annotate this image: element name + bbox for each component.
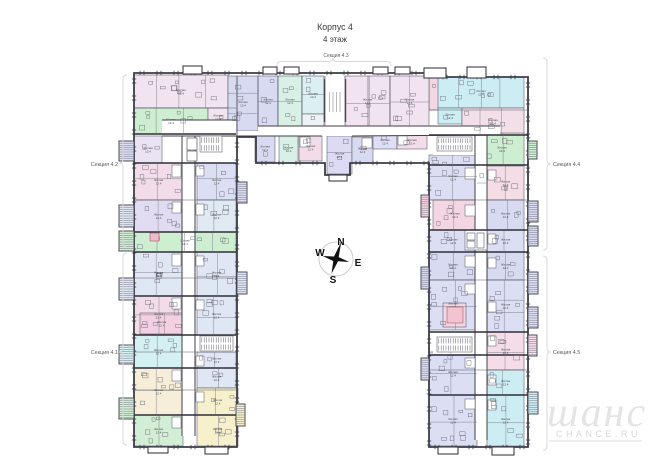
svg-text:12.4: 12.4 (478, 93, 484, 97)
svg-text:12.4: 12.4 (450, 178, 456, 182)
svg-text:12.4: 12.4 (503, 383, 509, 387)
svg-text:12.4: 12.4 (365, 101, 371, 105)
svg-text:12.4: 12.4 (499, 149, 505, 153)
svg-text:12.4: 12.4 (450, 421, 456, 425)
svg-text:12.4: 12.4 (215, 117, 221, 121)
svg-text:12.4: 12.4 (214, 274, 220, 278)
svg-text:12.4: 12.4 (310, 95, 316, 99)
svg-text:12.4: 12.4 (214, 378, 220, 382)
svg-text:N: N (337, 237, 344, 248)
svg-text:12.4: 12.4 (262, 148, 268, 152)
svg-text:12.4: 12.4 (240, 104, 246, 108)
svg-text:12.4: 12.4 (214, 216, 220, 220)
svg-text:12.4: 12.4 (503, 215, 509, 219)
svg-text:12.4: 12.4 (450, 374, 456, 378)
svg-text:12.4: 12.4 (156, 274, 162, 278)
svg-text:12.4: 12.4 (503, 421, 509, 425)
svg-text:12.4: 12.4 (407, 101, 413, 105)
svg-text:12.4: 12.4 (156, 216, 162, 220)
svg-text:12.4: 12.4 (503, 351, 509, 355)
svg-text:E: E (355, 258, 362, 269)
svg-text:Секция 4.2: Секция 4.2 (91, 162, 118, 168)
svg-text:12.4: 12.4 (452, 215, 458, 219)
svg-text:12.4: 12.4 (156, 316, 162, 320)
svg-text:12.4: 12.4 (156, 182, 162, 186)
svg-text:12.4: 12.4 (156, 431, 162, 435)
svg-text:Секция 4.3: Секция 4.3 (323, 53, 349, 59)
svg-text:12.4: 12.4 (168, 121, 174, 125)
svg-text:12.4: 12.4 (360, 150, 366, 154)
svg-text:12.4: 12.4 (503, 241, 509, 245)
svg-text:12.4: 12.4 (308, 148, 314, 152)
svg-text:Секция 4.4: Секция 4.4 (553, 162, 580, 168)
svg-text:12.4: 12.4 (503, 266, 509, 270)
svg-text:12.4: 12.4 (286, 149, 292, 153)
svg-text:12.4: 12.4 (337, 155, 343, 159)
svg-text:S: S (330, 275, 337, 286)
svg-text:12.4: 12.4 (215, 431, 221, 435)
svg-text:12.4: 12.4 (156, 352, 162, 356)
svg-text:12.4: 12.4 (156, 392, 162, 396)
svg-text:12.4: 12.4 (450, 266, 456, 270)
svg-text:Секция 4.5: Секция 4.5 (553, 350, 580, 356)
svg-text:12.4: 12.4 (182, 242, 188, 246)
svg-text:12.4: 12.4 (287, 101, 293, 105)
svg-text:Секция 4.1: Секция 4.1 (91, 350, 118, 356)
svg-text:12.4: 12.4 (382, 142, 388, 146)
svg-text:12.4: 12.4 (503, 183, 509, 187)
svg-text:W: W (315, 248, 325, 259)
svg-text:CHANCE.RU: CHANCE.RU (556, 429, 641, 439)
svg-text:12.4: 12.4 (214, 316, 220, 320)
svg-text:12.4: 12.4 (215, 402, 221, 406)
svg-text:12.4: 12.4 (214, 360, 220, 364)
svg-text:12.4: 12.4 (409, 142, 415, 146)
svg-text:12.4: 12.4 (447, 116, 453, 120)
svg-text:4 этаж: 4 этаж (323, 35, 348, 44)
svg-text:12.4: 12.4 (265, 101, 271, 105)
svg-text:12.4: 12.4 (214, 182, 220, 186)
svg-text:12.4: 12.4 (145, 150, 151, 154)
svg-text:12.4: 12.4 (490, 122, 496, 126)
svg-text:12.4: 12.4 (159, 324, 165, 328)
svg-text:12.4: 12.4 (178, 92, 184, 96)
svg-text:12.4: 12.4 (503, 306, 509, 310)
svg-text:Корпус 4: Корпус 4 (317, 22, 353, 32)
svg-text:12.4: 12.4 (450, 241, 456, 245)
